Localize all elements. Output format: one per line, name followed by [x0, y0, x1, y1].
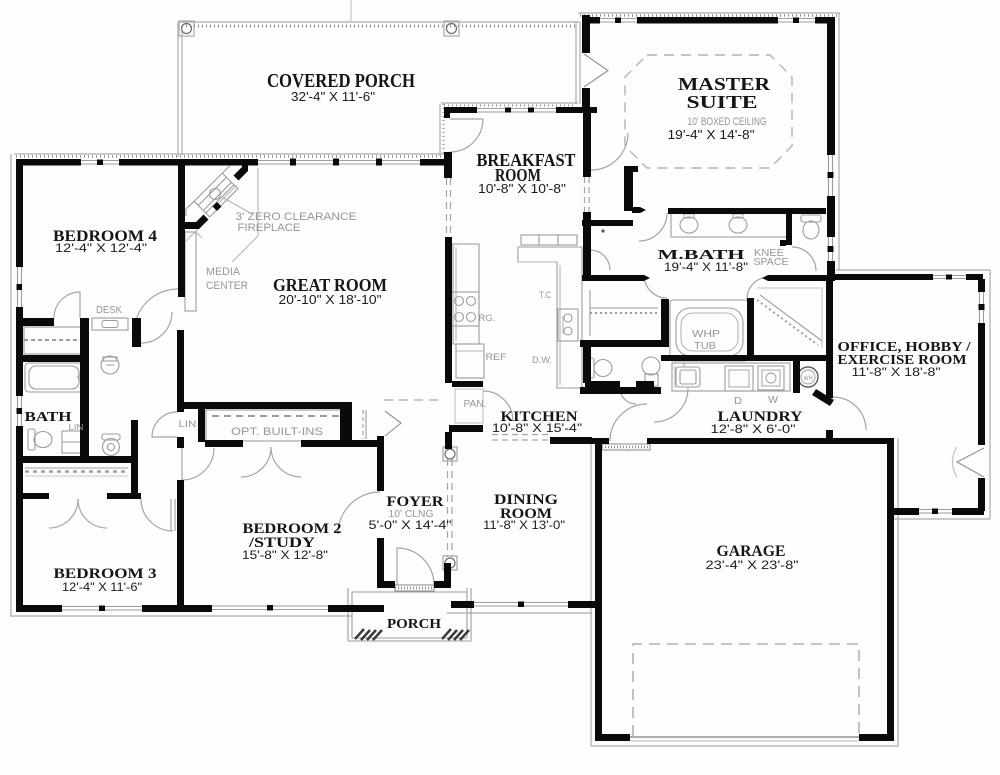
- svg-text:RG.: RG.: [479, 313, 496, 324]
- svg-text:SPACE: SPACE: [754, 256, 789, 268]
- svg-text:19'-4" X 14'-8": 19'-4" X 14'-8": [668, 127, 755, 142]
- svg-text:WHP: WHP: [692, 328, 720, 340]
- svg-text:LIN: LIN: [69, 422, 84, 432]
- svg-text:FOYER: FOYER: [387, 494, 445, 510]
- svg-text:11'-8" X 18'-8": 11'-8" X 18'-8": [852, 367, 941, 379]
- svg-text:EXERCISE ROOM: EXERCISE ROOM: [838, 352, 967, 367]
- svg-text:10'-8" X 10'-8": 10'-8" X 10'-8": [478, 181, 566, 196]
- svg-text:23'-4" X 23'-8": 23'-4" X 23'-8": [706, 558, 799, 572]
- svg-text:CENTER: CENTER: [206, 280, 248, 292]
- svg-text:12'-8" X 6'-0": 12'-8" X 6'-0": [711, 422, 796, 436]
- svg-text:W: W: [768, 395, 779, 406]
- svg-text:D.W.: D.W.: [532, 355, 552, 366]
- svg-text:T.C: T.C: [539, 290, 551, 301]
- svg-text:LIN.: LIN.: [179, 419, 200, 430]
- svg-text:12'-4" X 11'-6": 12'-4" X 11'-6": [62, 582, 142, 594]
- svg-text:MEDIA: MEDIA: [206, 266, 241, 278]
- svg-text:REF: REF: [486, 352, 507, 363]
- svg-text:32'-4" X 11'-6": 32'-4" X 11'-6": [291, 89, 375, 104]
- svg-text:DESK: DESK: [96, 305, 122, 316]
- svg-text:12'-4" X 12'-4": 12'-4" X 12'-4": [55, 243, 147, 255]
- svg-text:BEDROOM 3: BEDROOM 3: [54, 566, 157, 582]
- svg-text:MASTER: MASTER: [678, 74, 771, 94]
- svg-text:OPT. BUILT-INS: OPT. BUILT-INS: [231, 426, 323, 438]
- svg-text:PAN.: PAN.: [464, 399, 487, 410]
- svg-text:19'-4" X 11'-8": 19'-4" X 11'-8": [664, 260, 748, 274]
- svg-text:20'-10" X 18'-10": 20'-10" X 18'-10": [279, 293, 382, 307]
- svg-text:SUITE: SUITE: [687, 92, 758, 112]
- svg-text:10'-8" X 15'-4": 10'-8" X 15'-4": [492, 421, 582, 435]
- svg-text:PORCH: PORCH: [387, 616, 442, 631]
- svg-text:D: D: [734, 396, 742, 407]
- svg-text:TUB: TUB: [694, 340, 716, 352]
- svg-text:15'-8" X 12'-8": 15'-8" X 12'-8": [242, 548, 328, 562]
- svg-text:GREAT ROOM: GREAT ROOM: [273, 275, 387, 295]
- svg-text:WH: WH: [804, 376, 813, 382]
- svg-text:FIREPLACE: FIREPLACE: [238, 222, 301, 234]
- svg-text:5'-0" X 14'-4": 5'-0" X 14'-4": [369, 518, 452, 532]
- svg-text:11'-8" X 13'-0": 11'-8" X 13'-0": [483, 518, 565, 532]
- svg-text:BATH: BATH: [25, 409, 73, 424]
